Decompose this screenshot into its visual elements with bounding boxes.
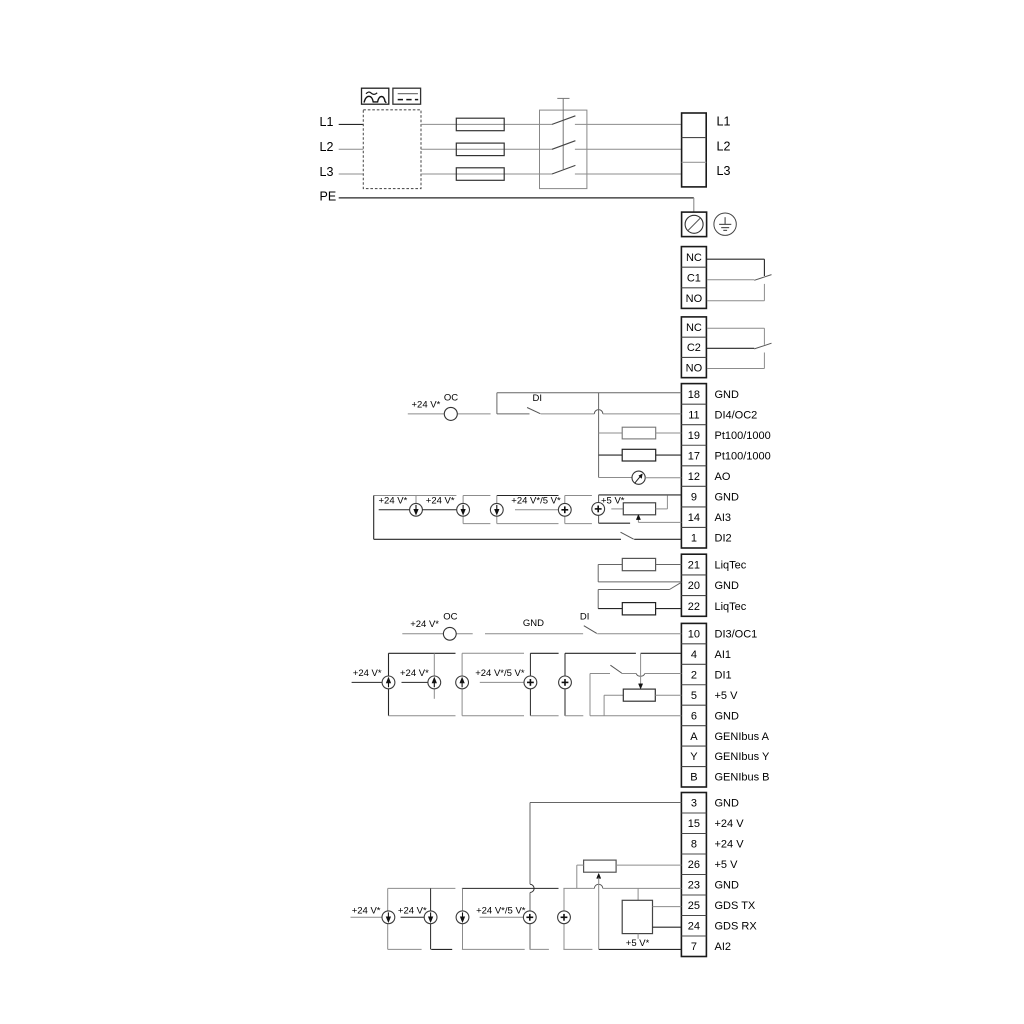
svg-text:GND: GND bbox=[715, 389, 740, 401]
svg-text:14: 14 bbox=[688, 512, 700, 524]
svg-text:20: 20 bbox=[688, 580, 700, 592]
svg-text:NC: NC bbox=[686, 252, 702, 264]
svg-text:L1: L1 bbox=[717, 115, 731, 129]
svg-text:6: 6 bbox=[691, 710, 697, 722]
svg-text:L2: L2 bbox=[320, 140, 334, 154]
svg-text:C2: C2 bbox=[687, 342, 701, 354]
svg-text:NC: NC bbox=[686, 322, 702, 334]
svg-text:+24 V*: +24 V* bbox=[398, 906, 427, 917]
svg-text:+24 V*: +24 V* bbox=[410, 619, 439, 630]
svg-text:GND: GND bbox=[715, 798, 740, 810]
svg-text:10: 10 bbox=[688, 629, 700, 641]
svg-text:+24 V*: +24 V* bbox=[353, 668, 382, 679]
svg-text:21: 21 bbox=[688, 559, 700, 571]
svg-text:LiqTec: LiqTec bbox=[715, 559, 747, 571]
svg-text:+5 V*: +5 V* bbox=[601, 495, 625, 506]
svg-text:L3: L3 bbox=[717, 164, 731, 178]
svg-text:GENIbus B: GENIbus B bbox=[715, 772, 770, 784]
svg-text:DI2: DI2 bbox=[715, 533, 732, 545]
svg-text:17: 17 bbox=[688, 450, 700, 462]
svg-text:+24 V: +24 V bbox=[715, 818, 745, 830]
svg-text:22: 22 bbox=[688, 601, 700, 613]
svg-text:L1: L1 bbox=[320, 115, 334, 129]
svg-text:15: 15 bbox=[688, 818, 700, 830]
svg-text:GENIbus A: GENIbus A bbox=[715, 731, 770, 743]
svg-text:DI4/OC2: DI4/OC2 bbox=[715, 409, 758, 421]
svg-text:GND: GND bbox=[523, 618, 544, 629]
svg-text:+5 V: +5 V bbox=[715, 859, 739, 871]
svg-text:GDS TX: GDS TX bbox=[715, 900, 756, 912]
svg-text:+24 V*: +24 V* bbox=[400, 668, 429, 679]
svg-text:C1: C1 bbox=[687, 272, 701, 284]
svg-text:DI: DI bbox=[533, 393, 543, 404]
svg-text:18: 18 bbox=[688, 389, 700, 401]
svg-text:DI3/OC1: DI3/OC1 bbox=[715, 629, 758, 641]
svg-text:24: 24 bbox=[688, 921, 700, 933]
svg-text:3: 3 bbox=[691, 798, 697, 810]
svg-text:+24 V*: +24 V* bbox=[379, 496, 408, 507]
svg-text:+5 V*: +5 V* bbox=[626, 938, 650, 949]
svg-text:+24 V*: +24 V* bbox=[426, 496, 455, 507]
svg-text:7: 7 bbox=[691, 941, 697, 953]
svg-text:AI3: AI3 bbox=[715, 512, 732, 524]
svg-text:OC: OC bbox=[443, 612, 457, 623]
svg-text:DI1: DI1 bbox=[715, 669, 732, 681]
svg-text:+24 V: +24 V bbox=[715, 839, 745, 851]
svg-text:Pt100/1000: Pt100/1000 bbox=[715, 450, 771, 462]
svg-text:GND: GND bbox=[715, 580, 740, 592]
svg-text:25: 25 bbox=[688, 900, 700, 912]
svg-text:GND: GND bbox=[715, 880, 740, 892]
svg-text:B: B bbox=[690, 772, 697, 784]
svg-text:26: 26 bbox=[688, 859, 700, 871]
svg-text:GDS RX: GDS RX bbox=[715, 921, 758, 933]
svg-text:+24 V*/5 V*: +24 V*/5 V* bbox=[476, 906, 526, 917]
svg-text:9: 9 bbox=[691, 492, 697, 504]
svg-text:AO: AO bbox=[715, 471, 731, 483]
svg-text:AI1: AI1 bbox=[715, 649, 732, 661]
svg-text:DI: DI bbox=[580, 612, 590, 623]
svg-text:+24 V*/5 V*: +24 V*/5 V* bbox=[511, 496, 561, 507]
svg-text:2: 2 bbox=[691, 669, 697, 681]
svg-text:+24 V*: +24 V* bbox=[412, 400, 441, 411]
svg-text:23: 23 bbox=[688, 880, 700, 892]
svg-text:Y: Y bbox=[690, 751, 698, 763]
svg-text:+5 V: +5 V bbox=[715, 690, 739, 702]
svg-text:NO: NO bbox=[686, 293, 703, 305]
svg-text:AI2: AI2 bbox=[715, 941, 732, 953]
svg-text:GENIbus Y: GENIbus Y bbox=[715, 751, 770, 763]
svg-text:+24 V*: +24 V* bbox=[352, 906, 381, 917]
svg-text:GND: GND bbox=[715, 492, 740, 504]
svg-text:L2: L2 bbox=[717, 139, 731, 153]
svg-text:11: 11 bbox=[688, 409, 699, 421]
svg-text:LiqTec: LiqTec bbox=[715, 601, 747, 613]
svg-text:A: A bbox=[690, 731, 698, 743]
svg-text:4: 4 bbox=[691, 649, 697, 661]
svg-text:+24 V*/5 V*: +24 V*/5 V* bbox=[475, 668, 525, 679]
svg-text:19: 19 bbox=[688, 430, 700, 442]
svg-text:8: 8 bbox=[691, 839, 697, 851]
svg-text:1: 1 bbox=[691, 533, 697, 545]
svg-text:OC: OC bbox=[444, 392, 458, 403]
svg-text:PE: PE bbox=[320, 189, 337, 203]
svg-text:NO: NO bbox=[686, 362, 703, 374]
svg-text:5: 5 bbox=[691, 690, 697, 702]
svg-text:L3: L3 bbox=[320, 165, 334, 179]
svg-text:12: 12 bbox=[688, 471, 700, 483]
svg-text:GND: GND bbox=[715, 710, 740, 722]
svg-text:Pt100/1000: Pt100/1000 bbox=[715, 430, 771, 442]
